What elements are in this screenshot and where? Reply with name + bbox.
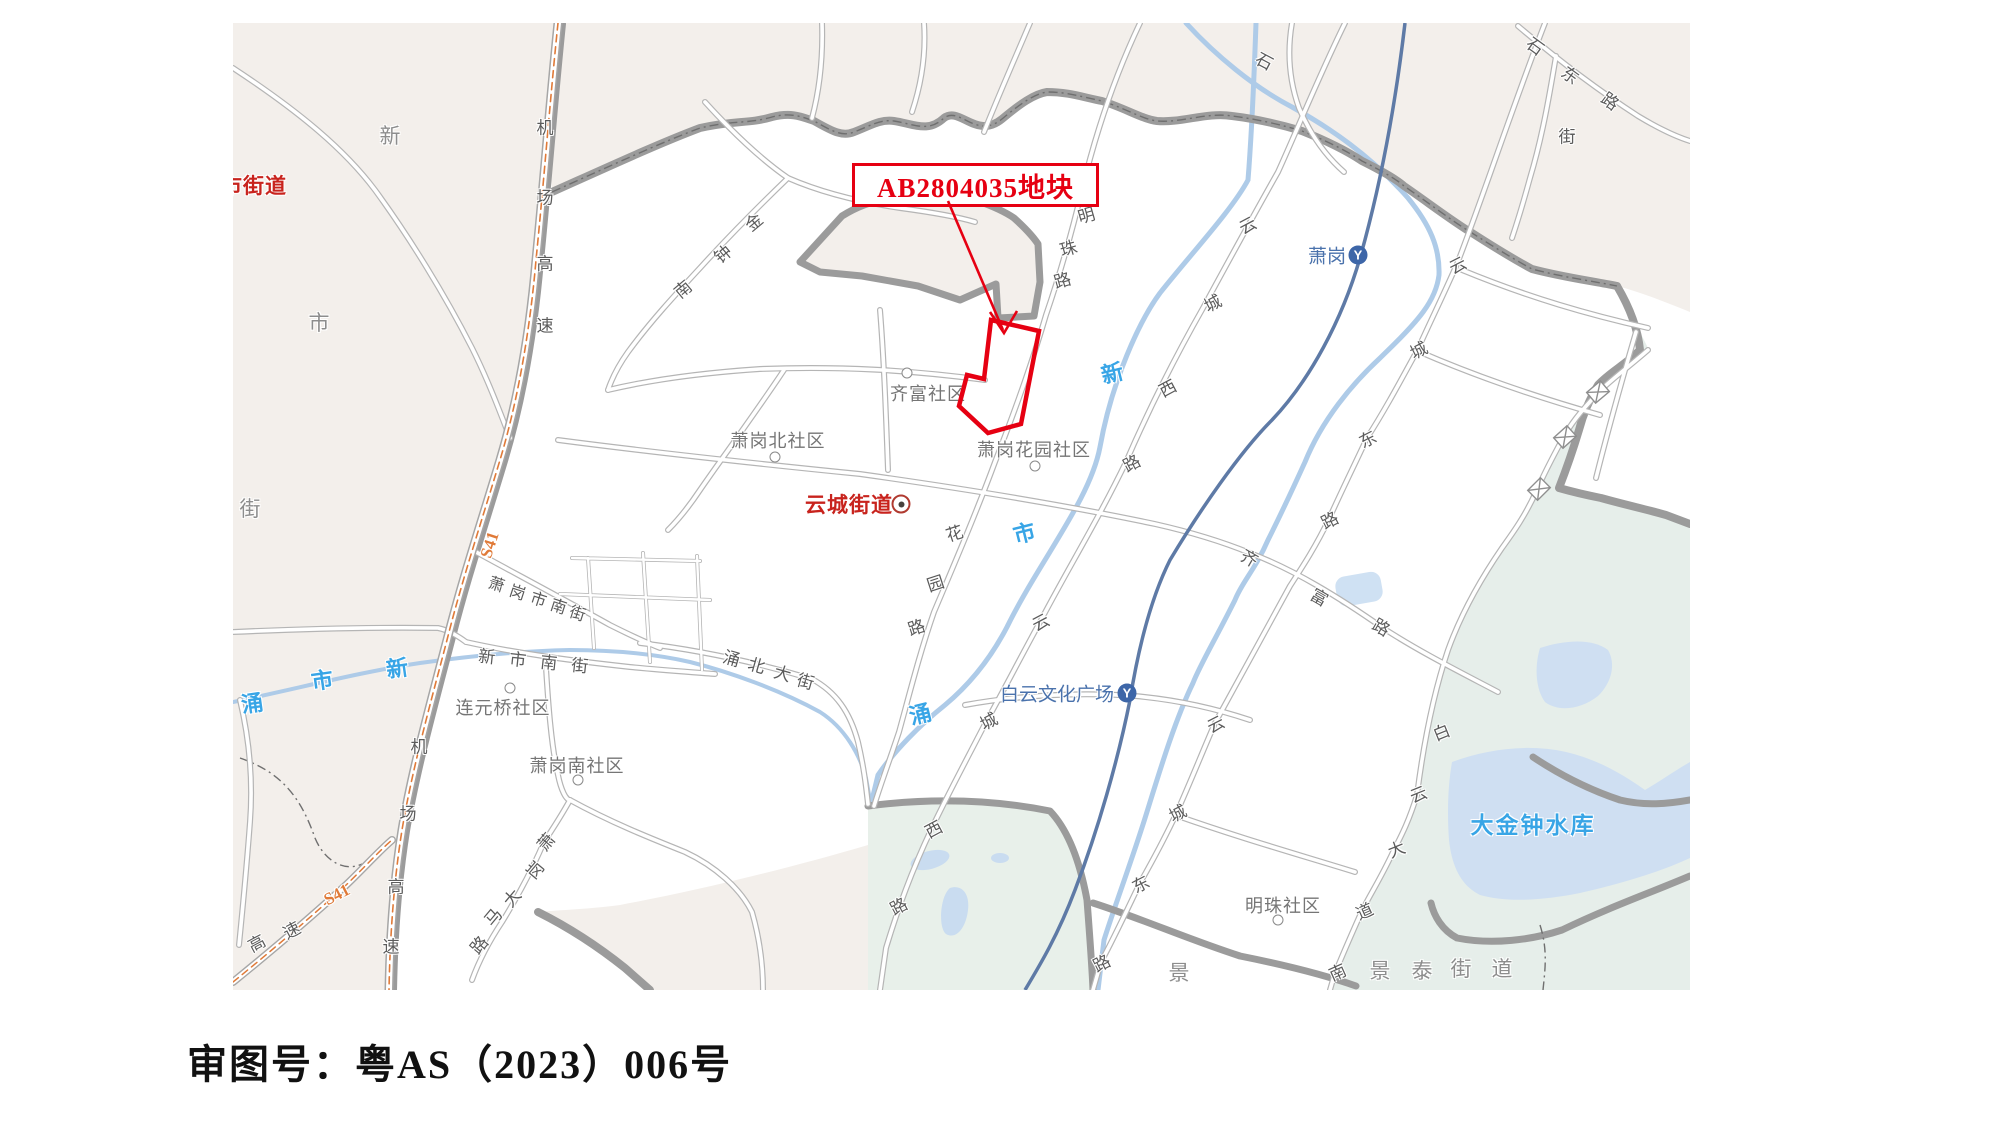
parcel-overlay-svg: [233, 23, 1690, 990]
map-approval-number: 审图号：粤AS（2023）006号: [187, 1032, 732, 1090]
callout-arrow: [948, 201, 1017, 333]
map-canvas[interactable]: 机场高速机场高速高速金钟南明珠路花园路云城西路云城西路云城东路云城东路齐富路白云…: [233, 23, 1690, 990]
parcel-outline[interactable]: [959, 320, 1039, 433]
screenshot-root: 机场高速机场高速高速金钟南明珠路花园路云城西路云城西路云城东路云城东路齐富路白云…: [0, 0, 2000, 1125]
